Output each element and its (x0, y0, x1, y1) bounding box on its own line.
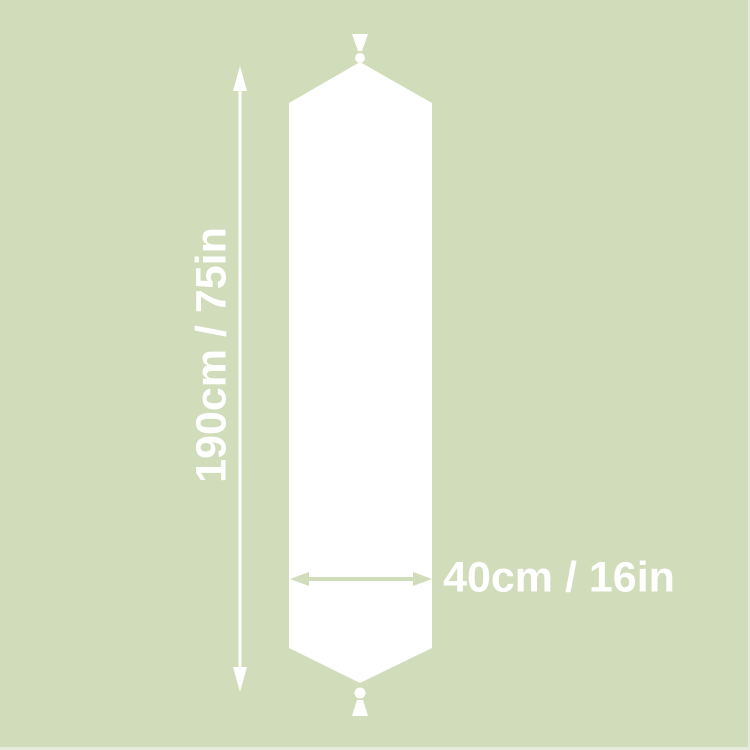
length-dimension-label: 190cm / 75in (191, 227, 234, 483)
table-runner-graphic (0, 0, 750, 750)
product-dimension-diagram: 190cm / 75in 40cm / 16in (0, 0, 750, 750)
width-dimension-label: 40cm / 16in (443, 557, 675, 600)
bottom-tassel-knot (355, 688, 366, 699)
table-runner-shape (289, 62, 432, 683)
top-tassel-knot (355, 53, 365, 63)
top-tassel-icon (352, 34, 368, 63)
arrow-up-icon (233, 66, 247, 91)
bottom-tassel-icon (352, 688, 368, 717)
arrow-down-icon (233, 667, 247, 692)
